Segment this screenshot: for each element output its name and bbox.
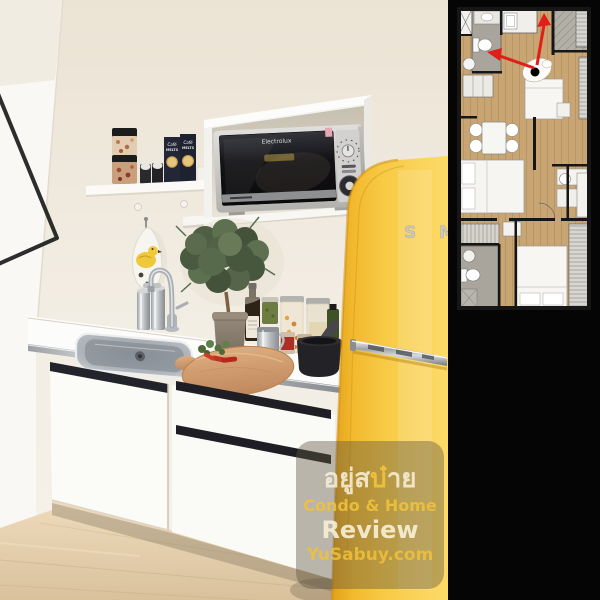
fridge-logo-letter: S: [404, 223, 416, 243]
svg-text:Café: Café: [167, 142, 177, 147]
watermark-thai-logo: อยู่สบ๋าย: [323, 465, 416, 494]
watermark-site-url: YuSabuy.com: [307, 546, 434, 565]
fridge-logo-letter: M: [439, 223, 448, 243]
floorplan-inset: [457, 7, 591, 310]
kitchen-photo: Café MELTS Café MELTS: [0, 0, 448, 600]
microwave-brand: Electrolux: [261, 137, 292, 145]
plan-basin: [463, 58, 475, 70]
wall-knob: [135, 204, 142, 211]
sticker: [325, 128, 332, 137]
svg-text:MELTS: MELTS: [182, 146, 195, 150]
coffee-box: Café MELTS: [180, 134, 196, 183]
plan-wardrobe: [463, 75, 493, 97]
watermark-condo-home: Condo & Home: [303, 497, 437, 515]
svg-text:Café: Café: [183, 140, 193, 145]
plan-closet-bottom: [461, 224, 499, 244]
floorplan-panel: [448, 0, 600, 600]
coffee-box: Café MELTS: [164, 137, 180, 183]
watermark-thai-accent: บ๋: [370, 464, 387, 494]
storage-jars: [112, 128, 137, 184]
watermark-review: Review: [321, 517, 418, 544]
watermark-badge: อยู่สบ๋าย Condo & Home Review YuSabuy.co…: [296, 441, 444, 589]
microwave: Electrolux: [213, 124, 367, 216]
plan-toilet: [478, 39, 492, 51]
svg-text:MELTS: MELTS: [166, 148, 179, 152]
wall-top-left-shade: [0, 0, 63, 86]
screenshot-root: Café MELTS Café MELTS: [0, 0, 600, 600]
wall-knob: [181, 201, 188, 208]
